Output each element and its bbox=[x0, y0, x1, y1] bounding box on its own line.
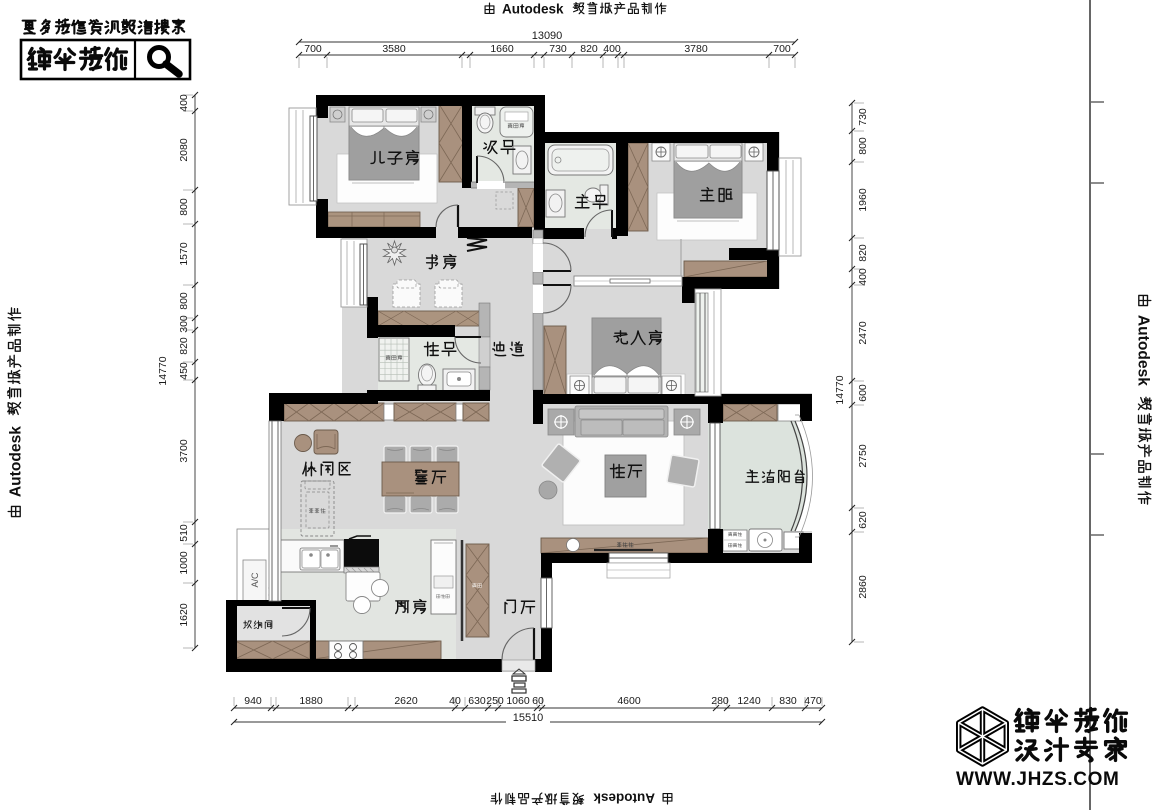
svg-text:400: 400 bbox=[857, 268, 869, 286]
svg-text:830: 830 bbox=[779, 695, 797, 707]
svg-text:1620: 1620 bbox=[178, 603, 190, 627]
svg-text:Autodesk: Autodesk bbox=[7, 426, 24, 497]
svg-text:730: 730 bbox=[549, 43, 567, 55]
svg-text:600: 600 bbox=[857, 384, 869, 402]
svg-text:13090: 13090 bbox=[532, 30, 563, 42]
svg-text:1960: 1960 bbox=[857, 188, 869, 212]
svg-text:400: 400 bbox=[603, 43, 621, 55]
svg-text:470: 470 bbox=[804, 695, 822, 707]
svg-text:250: 250 bbox=[486, 695, 504, 707]
svg-text:2750: 2750 bbox=[857, 444, 869, 468]
svg-text:730: 730 bbox=[857, 108, 869, 126]
svg-text:1240: 1240 bbox=[737, 695, 761, 707]
svg-text:1570: 1570 bbox=[178, 242, 190, 266]
svg-text:3580: 3580 bbox=[382, 43, 406, 55]
svg-text:14770: 14770 bbox=[157, 356, 169, 385]
svg-text:4600: 4600 bbox=[617, 695, 641, 707]
svg-text:1060: 1060 bbox=[506, 695, 530, 707]
svg-text:820: 820 bbox=[580, 43, 598, 55]
svg-text:280: 280 bbox=[711, 695, 729, 707]
svg-text:2470: 2470 bbox=[857, 321, 869, 345]
svg-text:940: 940 bbox=[244, 695, 262, 707]
svg-text:800: 800 bbox=[178, 292, 190, 310]
svg-text:15510: 15510 bbox=[513, 712, 544, 724]
svg-text:1880: 1880 bbox=[299, 695, 323, 707]
svg-text:3700: 3700 bbox=[178, 439, 190, 463]
svg-text:510: 510 bbox=[178, 524, 190, 542]
svg-text:620: 620 bbox=[857, 511, 869, 529]
svg-text:800: 800 bbox=[857, 137, 869, 155]
svg-text:A/C: A/C bbox=[250, 572, 260, 588]
svg-text:WWW.JHZS.COM: WWW.JHZS.COM bbox=[956, 769, 1119, 790]
svg-text:40: 40 bbox=[449, 695, 461, 707]
svg-text:Autodesk: Autodesk bbox=[502, 2, 564, 17]
svg-text:700: 700 bbox=[304, 43, 322, 55]
svg-text:450: 450 bbox=[178, 362, 190, 380]
svg-text:2080: 2080 bbox=[178, 138, 190, 162]
svg-text:Autodesk: Autodesk bbox=[593, 790, 655, 805]
svg-text:800: 800 bbox=[178, 198, 190, 216]
svg-text:820: 820 bbox=[857, 244, 869, 262]
svg-text:Autodesk: Autodesk bbox=[1135, 315, 1152, 386]
svg-text:2860: 2860 bbox=[857, 575, 869, 599]
svg-text:2620: 2620 bbox=[394, 695, 418, 707]
svg-text:1660: 1660 bbox=[490, 43, 514, 55]
svg-text:300: 300 bbox=[178, 315, 190, 333]
svg-text:700: 700 bbox=[773, 43, 791, 55]
svg-text:400: 400 bbox=[178, 94, 190, 112]
svg-text:1000: 1000 bbox=[178, 551, 190, 575]
svg-text:630: 630 bbox=[468, 695, 486, 707]
svg-text:14770: 14770 bbox=[834, 375, 846, 404]
svg-text:3780: 3780 bbox=[684, 43, 708, 55]
svg-text:60: 60 bbox=[532, 695, 544, 707]
svg-text:820: 820 bbox=[178, 337, 190, 355]
